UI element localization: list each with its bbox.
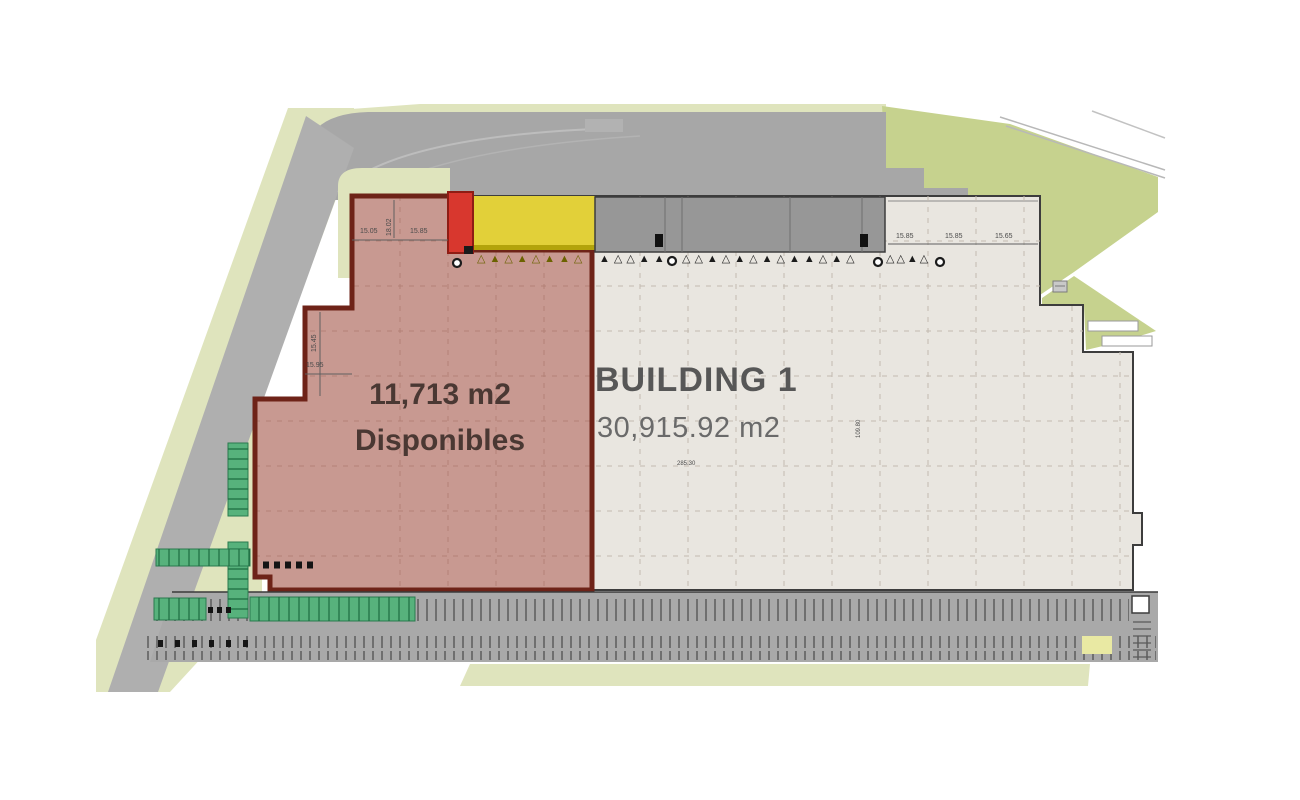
hydrant-circle-3 — [874, 258, 882, 266]
office-highlight-yellow — [473, 196, 595, 250]
stall-ticks-row1 — [415, 596, 1129, 621]
perimeter-road-line-3 — [1092, 111, 1165, 138]
dim-tr-bay-2: 15.85 — [945, 233, 963, 240]
dock-door-row-a: ▲△△▲▲ — [599, 252, 671, 266]
dim-top-bay-2: 15.85 — [410, 228, 428, 235]
building-area-label: 30,915.92 m2 — [597, 412, 780, 445]
south-verge — [460, 664, 1090, 686]
label-box-2 — [1102, 336, 1152, 346]
dim-top-bay-depth: 18.02 — [386, 218, 393, 236]
available-area-caption: Disponibles — [300, 418, 580, 464]
court-pavement-mark — [585, 119, 623, 132]
office-highlight-yellow-edge — [473, 245, 595, 250]
entrance-door-mark — [464, 246, 473, 254]
entrance-highlight-red — [448, 192, 473, 253]
dock-door-row-c: △△▲△ — [886, 252, 936, 266]
dim-tr-bay-1: 15.85 — [896, 233, 914, 240]
available-area-value: 11,713 m2 — [300, 372, 580, 418]
dim-total-width: 285.30 — [677, 461, 695, 467]
dock-strip — [595, 197, 885, 252]
dim-total-depth: 109.80 — [856, 420, 862, 438]
dim-top-bay-1: 15.05 — [360, 228, 378, 235]
hydrant-circle-4 — [936, 258, 944, 266]
dock-door-row-entry: △▲△▲△▲▲△ — [477, 252, 595, 266]
building-name-label: BUILDING 1 — [595, 361, 798, 400]
dim-tr-bay-3: 15.65 — [995, 233, 1013, 240]
hydrant-circle-1 — [453, 259, 461, 267]
dock-ramp-door-2 — [860, 234, 868, 247]
dock-ramp-door-1 — [655, 234, 663, 247]
site-plan-drawing — [0, 0, 1300, 800]
dock-door-row-b: △△▲△▲△▲△▲▲△▲△ — [682, 252, 874, 266]
label-box-1 — [1088, 321, 1138, 331]
south-yellow-patch — [1082, 636, 1112, 654]
guard-booth — [1132, 596, 1149, 613]
stall-ticks-row2 — [140, 636, 1156, 660]
dim-left-bay-depth: 15.45 — [311, 334, 318, 352]
site-plan: △▲△▲△▲▲△ ▲△△▲▲ △△▲△▲△▲△▲▲△▲△ △△▲△ BUILDI… — [0, 0, 1300, 800]
dim-left-bay-w: 15.95 — [306, 362, 324, 369]
available-area-block: 11,713 m2 Disponibles — [300, 372, 580, 464]
